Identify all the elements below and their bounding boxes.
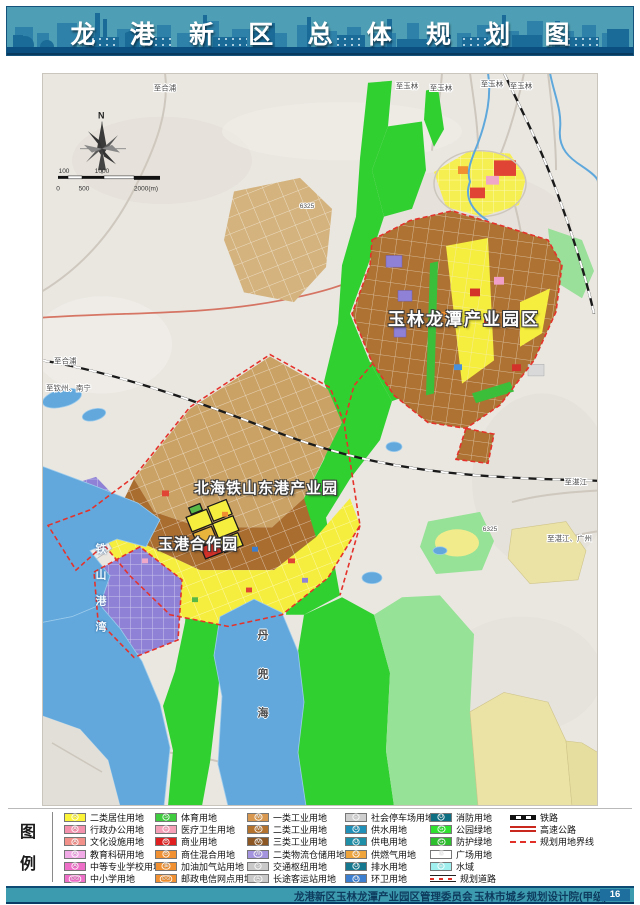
legend-item: A行政办公用地 [64, 823, 162, 835]
legend-column-4: P社会停车场用地 U供水用地 U供电用地 U供燃气用地 U排水用地 U环卫用地 [345, 811, 434, 885]
legend-label: 环卫用地 [371, 872, 407, 885]
legend-label: 一类工业用地 [273, 811, 327, 824]
legend-item: A教育科研用地 [64, 848, 162, 860]
legend-symbol: B [162, 838, 169, 845]
railway-symbol [510, 815, 536, 820]
svg-text:至钦州、南宁: 至钦州、南宁 [46, 384, 91, 393]
legend-swatch: G [430, 825, 452, 834]
legend-item: U环卫用地 [345, 872, 434, 884]
footer-designer: 玉林市城乡规划设计院(甲级) [474, 889, 607, 904]
legend-label: 供水用地 [371, 823, 407, 836]
town-ne [434, 151, 526, 217]
water-label-dandou-sea: 丹兜海 [254, 629, 270, 746]
legend-swatch: 客 [247, 874, 269, 883]
legend-symbol: G [437, 826, 445, 833]
legend-item: G公园绿地 [430, 823, 496, 835]
legend-swatch: U [345, 862, 367, 871]
legend-label: 供电用地 [371, 835, 407, 848]
legend-item: 客长途客运站用地 [247, 872, 345, 884]
legend-column-1: R二类居住用地 A行政办公用地 A文化设施用地 A教育科研用地 A中等专业学校用… [64, 811, 162, 885]
highway-symbol [510, 826, 536, 832]
legend-item: U供水用地 [345, 823, 434, 835]
area-label-yugang-cooperation-park: 玉港合作园 [158, 533, 238, 554]
legend-symbol: U [437, 814, 445, 821]
legend-symbol: G [437, 838, 445, 845]
legend-item: 高速公路 [510, 823, 594, 835]
svg-text:100: 100 [59, 168, 70, 175]
legend-symbol: G [437, 850, 445, 857]
legend-symbol: A [71, 863, 78, 870]
legend-label: 交通枢纽用地 [273, 860, 327, 873]
svg-text:1000: 1000 [95, 168, 110, 175]
legend-symbol: ⊙⊙ [69, 875, 82, 882]
svg-text:至玉林: 至玉林 [510, 82, 533, 91]
legend-item: R二类居住用地 [64, 811, 162, 823]
legend-swatch: A [64, 825, 86, 834]
legend-symbol: A [71, 826, 78, 833]
legend-item: M二类工业用地 [247, 823, 345, 835]
legend-column-2: S体育用地 +医疗卫生用地 B商业用地 B商住混合用地 油加油加气站用地 ⊙⊙邮… [155, 811, 253, 885]
legend-swatch: B [155, 837, 177, 846]
legend-label: 二类居住用地 [90, 811, 144, 824]
legend-swatch: A [64, 850, 86, 859]
legend-swatch: M [247, 825, 269, 834]
legend-swatch: + [155, 825, 177, 834]
legend-swatch: S [247, 862, 269, 871]
legend-item: A文化设施用地 [64, 836, 162, 848]
planning-boundary-symbol [510, 841, 536, 843]
legend-symbol: P [352, 814, 359, 821]
legend-swatch: A [64, 837, 86, 846]
legend-item: 油加油加气站用地 [155, 860, 253, 872]
legend-column-6: 铁路 高速公路 规划用地界线 [510, 811, 594, 848]
page-number: 16 [600, 889, 630, 901]
legend-swatch: B [155, 850, 177, 859]
legend-item: B商业用地 [155, 836, 253, 848]
legend-item: M一类工业用地 [247, 811, 345, 823]
svg-text:至玉林: 至玉林 [430, 84, 453, 93]
legend-label: 长途客运站用地 [273, 872, 336, 885]
legend-item: U供电用地 [345, 836, 434, 848]
legend-swatch: ⊙⊙ [155, 874, 177, 883]
legend-symbol: U [352, 875, 360, 882]
legend-symbol: U [352, 826, 360, 833]
legend-swatch: E [430, 862, 452, 871]
legend-label: 规划道路 [460, 872, 496, 885]
legend-symbol: M [254, 814, 262, 821]
legend-symbol: U [352, 838, 360, 845]
legend-symbol: E [437, 863, 444, 870]
legend-label: 中小学用地 [90, 872, 135, 885]
legend-item: M三类工业用地 [247, 836, 345, 848]
legend-label: 消防用地 [456, 811, 492, 824]
legend-top-rule [8, 808, 632, 809]
legend-item: ⊙⊙邮政电信网点用地 [155, 872, 253, 884]
svg-text:6325: 6325 [483, 526, 498, 533]
legend-label: 商业用地 [181, 835, 217, 848]
legend-symbol: A [71, 838, 78, 845]
legend-symbol: ⊙⊙ [160, 875, 173, 882]
legend-title-char-1: 图 [20, 818, 36, 842]
legend-item: U消防用地 [430, 811, 496, 823]
svg-text:至玉林: 至玉林 [396, 82, 419, 91]
legend-item: U排水用地 [345, 860, 434, 872]
compass-north-label: N [98, 111, 105, 121]
legend-swatch: R [64, 813, 86, 822]
legend-label: 排水用地 [371, 860, 407, 873]
svg-text:0: 0 [56, 186, 60, 193]
legend-label: 中等专业学校用地 [90, 860, 162, 873]
legend-item: B商住混合用地 [155, 848, 253, 860]
legend-item: ⊙⊙中小学用地 [64, 872, 162, 884]
footer-bar: 龙港新区玉林龙潭产业园区管理委员会 玉林市城乡规划设计院(甲级) 16 [6, 886, 634, 904]
legend-item: S交通枢纽用地 [247, 860, 345, 872]
svg-text:6325: 6325 [300, 203, 315, 210]
legend-symbol: + [162, 826, 169, 833]
legend-symbol: S [162, 814, 169, 821]
legend-item: 铁路 [510, 811, 594, 823]
legend-label: 体育用地 [181, 811, 217, 824]
legend-item: W二类物流仓储用地 [247, 848, 345, 860]
svg-text:至合浦: 至合浦 [54, 356, 77, 365]
legend-item: +医疗卫生用地 [155, 823, 253, 835]
legend-label: 教育科研用地 [90, 848, 144, 861]
legend-item: G防护绿地 [430, 836, 496, 848]
legend-label: 二类物流仓储用地 [273, 848, 345, 861]
legend-title-char-2: 例 [20, 850, 36, 874]
svg-text:至玉林: 至玉林 [481, 80, 504, 89]
legend-divider [52, 812, 53, 882]
legend-symbol: 油 [161, 863, 170, 870]
legend-label: 水域 [456, 860, 474, 873]
legend-swatch: G [430, 850, 452, 859]
master-plan-map: N 100 1000 0 500 2000(m) 至合浦 至玉林 至玉林 [42, 73, 598, 806]
map-canvas: N 100 1000 0 500 2000(m) 至合浦 至玉林 至玉林 [42, 73, 598, 806]
legend-label: 供燃气用地 [371, 848, 416, 861]
svg-text:至合浦: 至合浦 [154, 84, 177, 93]
legend-label: 公园绿地 [456, 823, 492, 836]
legend-column-3: M一类工业用地 M二类工业用地 M三类工业用地 W二类物流仓储用地 S交通枢纽用… [247, 811, 345, 885]
legend-item: A中等专业学校用地 [64, 860, 162, 872]
legend-item: 规划用地界线 [510, 836, 594, 848]
legend-swatch: ⊙⊙ [64, 874, 86, 883]
header-banner: 龙 港 新 区 总 体 规 划 图 [6, 6, 634, 56]
legend-swatch: A [64, 862, 86, 871]
legend-symbol: A [71, 850, 78, 857]
legend-symbol: U [352, 850, 360, 857]
legend-label: 三类工业用地 [273, 835, 327, 848]
legend-item: P社会停车场用地 [345, 811, 434, 823]
legend-item: E水域 [430, 860, 496, 872]
legend-label: 社会停车场用地 [371, 811, 434, 824]
legend-symbol: U [352, 863, 360, 870]
legend-swatch: U [345, 837, 367, 846]
legend-symbol: S [254, 863, 261, 870]
legend-swatch: M [247, 837, 269, 846]
legend-column-5: U消防用地 G公园绿地 G防护绿地 G广场用地 E水域 规划道路 [430, 811, 496, 885]
planned-road-symbol [430, 875, 456, 882]
svg-text:至湛江: 至湛江 [565, 478, 588, 487]
legend-swatch: U [345, 850, 367, 859]
legend-symbol: B [162, 850, 169, 857]
legend-symbol: 客 [253, 875, 262, 882]
legend-label: 文化设施用地 [90, 835, 144, 848]
water-label-tieshangang-bay: 铁山港湾 [92, 543, 108, 647]
legend-label: 广场用地 [456, 848, 492, 861]
legend-swatch: U [430, 813, 452, 822]
svg-text:2000(m): 2000(m) [134, 186, 158, 193]
legend-item: 规划道路 [430, 872, 496, 884]
plan-poster-page: 龙 港 新 区 总 体 规 划 图 [0, 0, 640, 905]
legend-swatch: S [155, 813, 177, 822]
area-label-beihai-tieshan-eastport-park: 北海铁山东港产业园 [194, 477, 338, 498]
legend-symbol: W [254, 850, 263, 857]
legend-swatch: 油 [155, 862, 177, 871]
legend-symbol: M [254, 826, 262, 833]
area-label-yulin-longtan-park: 玉林龙潭产业园区 [388, 305, 540, 330]
legend-swatch: U [345, 825, 367, 834]
legend-label: 高速公路 [540, 823, 576, 836]
legend-item: G广场用地 [430, 848, 496, 860]
legend-label: 规划用地界线 [540, 835, 594, 848]
svg-text:500: 500 [79, 186, 90, 193]
legend-label: 防护绿地 [456, 835, 492, 848]
legend-label: 二类工业用地 [273, 823, 327, 836]
page-title: 龙 港 新 区 总 体 规 划 图 [7, 15, 633, 51]
legend-swatch: G [430, 837, 452, 846]
footer-agency: 龙港新区玉林龙潭产业园区管理委员会 [294, 889, 473, 904]
legend-label: 商住混合用地 [181, 848, 235, 861]
legend-label: 邮政电信网点用地 [181, 872, 253, 885]
legend-label: 医疗卫生用地 [181, 823, 235, 836]
legend-swatch: W [247, 850, 269, 859]
legend-swatch: M [247, 813, 269, 822]
legend-item: S体育用地 [155, 811, 253, 823]
legend-symbol: R [71, 814, 79, 821]
legend-label: 行政办公用地 [90, 823, 144, 836]
legend-label: 铁路 [540, 811, 558, 824]
svg-text:至湛江、广州: 至湛江、广州 [547, 534, 592, 543]
legend-swatch: P [345, 813, 367, 822]
legend-symbol: M [254, 838, 262, 845]
legend-panel: 图 例 R二类居住用地 A行政办公用地 A文化设施用地 A教育科研用地 A中等专… [6, 808, 634, 885]
legend-swatch: U [345, 874, 367, 883]
legend-item: U供燃气用地 [345, 848, 434, 860]
legend-label: 加油加气站用地 [181, 860, 244, 873]
